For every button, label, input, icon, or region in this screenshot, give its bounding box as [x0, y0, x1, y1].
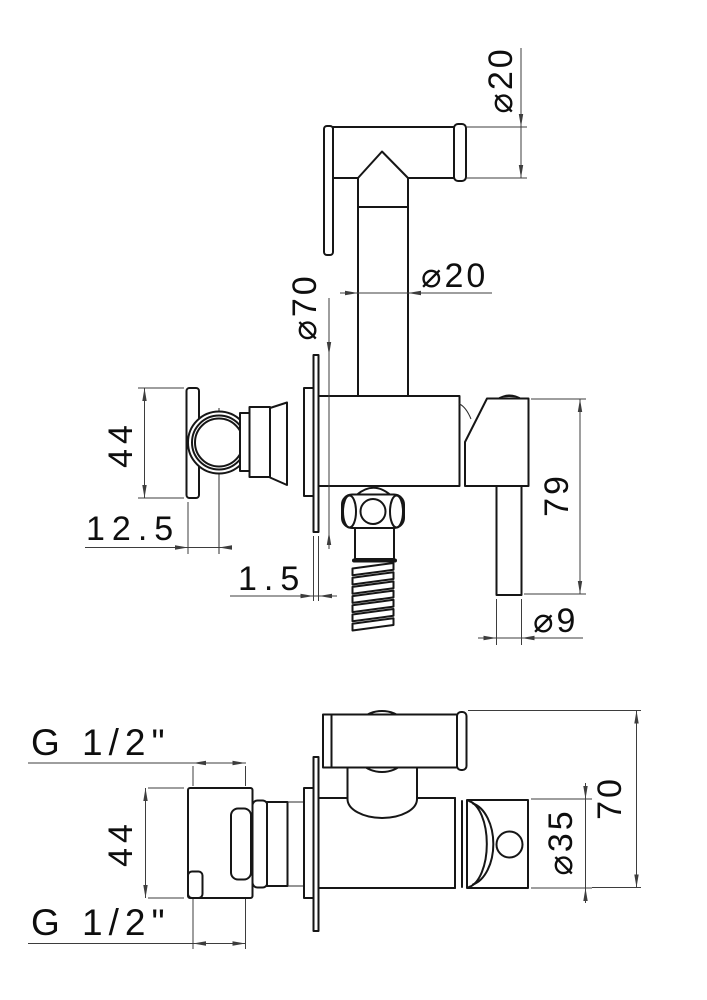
technical-drawing: ⌀20 ⌀20 ⌀70 44 12.5 1.5: [0, 0, 707, 1000]
dim-bracket-height: 44: [102, 420, 140, 468]
plan-view: G 1/2" 44 ⌀35 70 G 1/2": [28, 711, 641, 950]
lever-bar: [323, 715, 459, 768]
dim-overall-depth: 70: [591, 776, 629, 820]
dim-body-diameter: ⌀35: [542, 808, 580, 875]
adapter-flare: [267, 802, 288, 886]
valve-body: [319, 396, 460, 486]
dim-axis-offset: 12.5: [86, 510, 180, 548]
neck-dome: [348, 799, 418, 818]
flange-disc-plan: [314, 757, 319, 931]
dim-flange-diameter: ⌀70: [286, 273, 324, 340]
hose-coil: [353, 563, 394, 631]
stem-step-1: [240, 413, 250, 471]
lever-bar-cap: [457, 712, 467, 770]
flange-hub: [304, 388, 314, 496]
dim-spray-diameter: ⌀20: [482, 46, 520, 113]
flange-hub-plan: [304, 788, 314, 898]
dim-tube-diameter: ⌀20: [421, 257, 488, 295]
connection-block: [188, 788, 253, 898]
lever-rod: [497, 486, 522, 595]
dim-inlet-thread: G 1/2": [31, 722, 171, 763]
dim-outlet-thread: G 1/2": [31, 902, 171, 943]
lever-fillet: [460, 404, 472, 419]
dim-lever-length: 79: [538, 473, 576, 517]
spray-rear-plate: [324, 126, 333, 255]
lever-base: [465, 399, 529, 487]
dim-rod-diameter: ⌀9: [533, 602, 578, 640]
stem-step-2: [250, 407, 271, 477]
dim-bracket-depth: 44: [102, 819, 140, 867]
tube-mask: [359, 152, 407, 396]
stem-adapter: [270, 403, 287, 486]
spray-end-cap: [454, 124, 466, 181]
adapter-step: [253, 801, 268, 888]
dim-plate-thickness: 1.5: [238, 560, 306, 598]
front-view: ⌀20 ⌀20 ⌀70 44 12.5 1.5: [85, 46, 586, 645]
drawing-sheet: ⌀20 ⌀20 ⌀70 44 12.5 1.5: [0, 0, 707, 1000]
hose-neck: [355, 528, 394, 559]
